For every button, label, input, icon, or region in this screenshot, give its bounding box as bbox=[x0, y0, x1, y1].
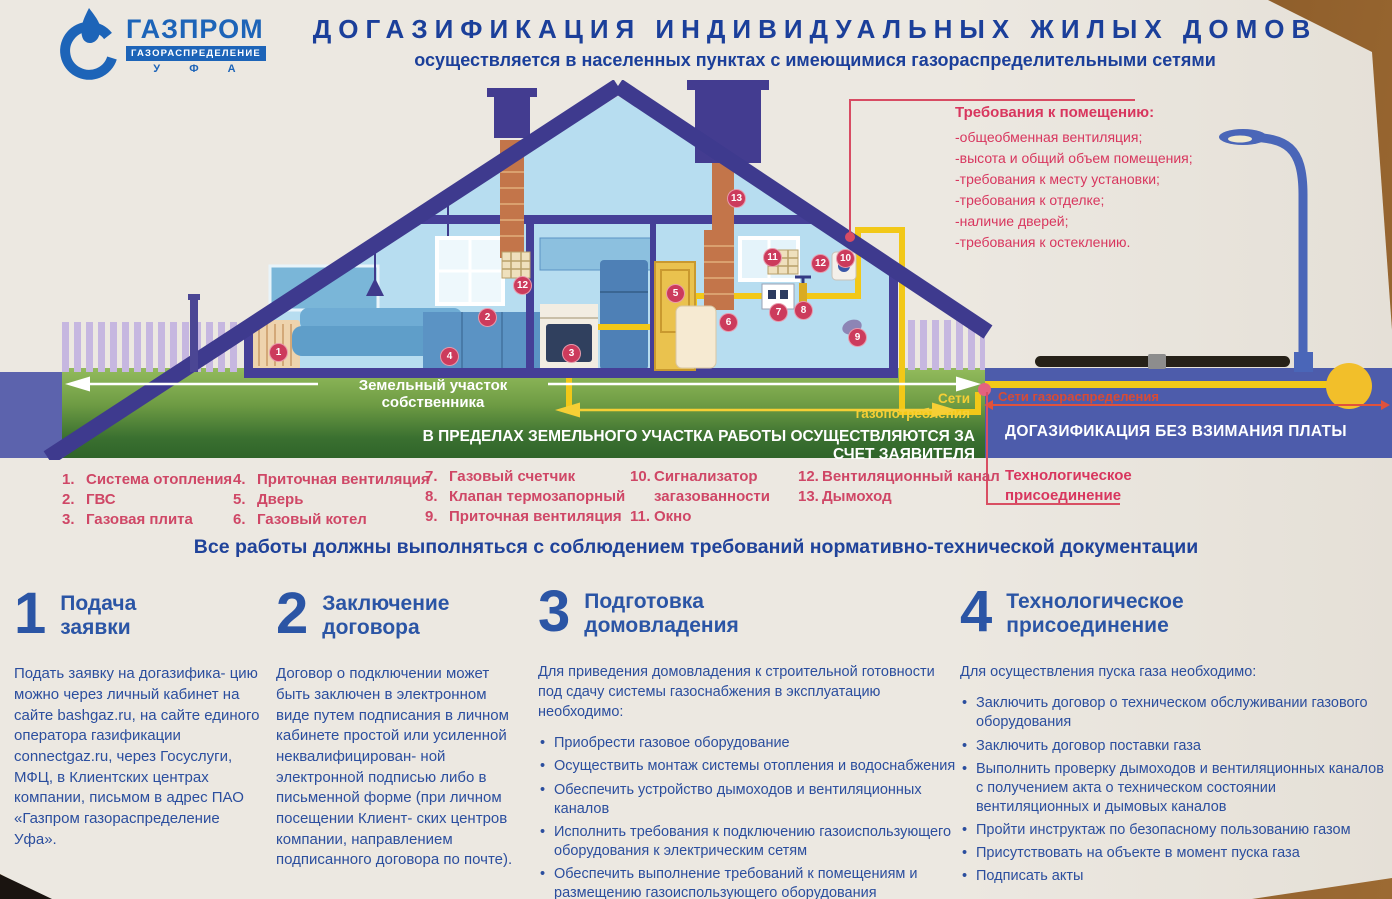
step-number: 1 bbox=[14, 588, 46, 640]
poster: ГАЗПРОМ ГАЗОРАСПРЕДЕЛЕНИЕ У Ф А ДОГАЗИФИ… bbox=[0, 0, 1392, 899]
bullet: Заключить договор о техническом обслужив… bbox=[960, 694, 1385, 732]
marker-9: 9 bbox=[849, 329, 866, 346]
logo-subtitle: ГАЗОРАСПРЕДЕЛЕНИЕ bbox=[126, 46, 266, 61]
legend-column-2: 4.Приточная вентиляция 5.Дверь 6.Газовый… bbox=[233, 470, 430, 530]
legend-column-5: 12.Вентиляционный канал 13.Дымоход bbox=[798, 467, 1000, 507]
step-title: Подачазаявки bbox=[60, 588, 136, 640]
bullet: Приобрести газовое оборудование bbox=[538, 734, 958, 753]
legend-item: 3.Газовая плита bbox=[62, 510, 232, 530]
step-number: 4 bbox=[960, 586, 992, 638]
poster-subtitle: осуществляется в населенных пунктах с им… bbox=[300, 50, 1330, 71]
step-title: Подготовкадомовладения bbox=[584, 586, 738, 638]
marker-13: 13 bbox=[728, 190, 745, 207]
legend-item: 1.Система отопления bbox=[62, 470, 232, 490]
step-body: Договор о подключении может быть заключе… bbox=[276, 664, 518, 871]
bullet: Заключить договор поставки газа bbox=[960, 737, 1385, 756]
bullet: Выполнить проверку дымоходов и вентиляци… bbox=[960, 760, 1385, 817]
legend-item: 9.Приточная вентиляция bbox=[425, 507, 625, 527]
marker-5: 5 bbox=[667, 285, 684, 302]
legend-item: 2.ГВС bbox=[62, 490, 232, 510]
marker-2: 2 bbox=[479, 309, 496, 326]
legend-column-4: 10.Сигнализатор загазованности 11.Окно bbox=[630, 467, 782, 527]
marker-10: 10 bbox=[837, 250, 854, 267]
step-body: Подать заявку на догазифика- цию можно ч… bbox=[14, 664, 266, 850]
photo-background: ГАЗПРОМ ГАЗОРАСПРЕДЕЛЕНИЕ У Ф А ДОГАЗИФИ… bbox=[0, 0, 1392, 899]
gas-distribution-label: Сети газораспределения bbox=[998, 389, 1159, 404]
legend-item: 6.Газовый котел bbox=[233, 510, 430, 530]
legend-item: 11.Окно bbox=[630, 507, 782, 527]
legend-item: 8.Клапан термозапорный bbox=[425, 487, 625, 507]
land-plot-label: Земельный участок собственника bbox=[320, 377, 546, 411]
poster-title: ДОГАЗИФИКАЦИЯ ИНДИВИДУАЛЬНЫХ ЖИЛЫХ ДОМОВ bbox=[300, 14, 1330, 45]
legend-item: 7.Газовый счетчик bbox=[425, 467, 625, 487]
marker-8: 8 bbox=[795, 302, 812, 319]
marker-12: 12 bbox=[812, 255, 829, 272]
marker-11: 11 bbox=[764, 249, 781, 266]
bullet: Пройти инструктаж по безопасному пользов… bbox=[960, 821, 1385, 840]
legend-item: 5.Дверь bbox=[233, 490, 430, 510]
bullet: Обеспечить устройство дымоходов и вентил… bbox=[538, 781, 958, 819]
land-banner: В ПРЕДЕЛАХ ЗЕМЕЛЬНОГО УЧАСТКА РАБОТЫ ОСУ… bbox=[420, 428, 975, 464]
marker-12b: 12 bbox=[514, 277, 531, 294]
marker-6: 6 bbox=[720, 314, 737, 331]
requirements-leader-line bbox=[845, 100, 1135, 242]
step-bullets: Приобрести газовое оборудование Осуществ… bbox=[538, 734, 958, 899]
marker-4: 4 bbox=[441, 348, 458, 365]
bullet: Осуществить монтаж системы отопления и в… bbox=[538, 757, 958, 776]
step-2: 2 Заключениедоговора Договор о подключен… bbox=[276, 588, 518, 871]
step-1: 1 Подачазаявки Подать заявку на догазифи… bbox=[14, 588, 266, 850]
legend-column-1: 1.Система отопления 2.ГВС 3.Газовая плит… bbox=[62, 470, 232, 530]
legend-item: 10.Сигнализатор загазованности bbox=[630, 467, 782, 507]
step-bullets: Заключить договор о техническом обслужив… bbox=[960, 694, 1385, 886]
step-title: Технологическоеприсоединение bbox=[1006, 586, 1183, 638]
marker-7: 7 bbox=[770, 304, 787, 321]
gazprom-flame-icon bbox=[58, 6, 120, 86]
legend-item: 13.Дымоход bbox=[798, 487, 1000, 507]
step-intro: Для осуществления пуска газа необходимо: bbox=[960, 662, 1385, 682]
step-4: 4 Технологическоеприсоединение Для осуще… bbox=[960, 586, 1385, 890]
distribution-gas-pipe bbox=[985, 381, 1330, 388]
bullet: Исполнить требования к подключению газои… bbox=[538, 823, 958, 861]
house-diagram bbox=[0, 80, 1392, 460]
connection-point-dot bbox=[978, 383, 991, 396]
step-intro: Для приведения домовладения к строительн… bbox=[538, 662, 958, 722]
step-3: 3 Подготовкадомовладения Для приведения … bbox=[538, 586, 958, 899]
compliance-notice: Все работы должны выполняться с соблюден… bbox=[0, 536, 1392, 559]
bullet: Обеспечить выполнение требований к помещ… bbox=[538, 865, 958, 899]
gas-distribution-arrow bbox=[992, 404, 1382, 406]
bullet: Присутствовать на объекте в момент пуска… bbox=[960, 844, 1385, 863]
gas-consumption-label: Сети газопотребления bbox=[845, 391, 970, 421]
legend-item: 12.Вентиляционный канал bbox=[798, 467, 1000, 487]
logo-city: У Ф А bbox=[126, 63, 266, 75]
free-connection-banner: ДОГАЗИФИКАЦИЯ БЕЗ ВЗИМАНИЯ ПЛАТЫ bbox=[1005, 423, 1347, 441]
marker-1: 1 bbox=[270, 344, 287, 361]
step-number: 3 bbox=[538, 586, 570, 638]
step-title: Заключениедоговора bbox=[322, 588, 449, 640]
legend-item: 4.Приточная вентиляция bbox=[233, 470, 430, 490]
street-light bbox=[1219, 129, 1313, 372]
legend-column-3: 7.Газовый счетчик 8.Клапан термозапорный… bbox=[425, 467, 625, 527]
step-number: 2 bbox=[276, 588, 308, 640]
logo-name: ГАЗПРОМ bbox=[126, 16, 266, 43]
legend-tech-connection: Технологическое присоединение bbox=[1005, 466, 1165, 506]
bullet: Подписать акты bbox=[960, 867, 1385, 886]
gas-main-endpoint bbox=[1326, 363, 1372, 409]
marker-3: 3 bbox=[563, 345, 580, 362]
